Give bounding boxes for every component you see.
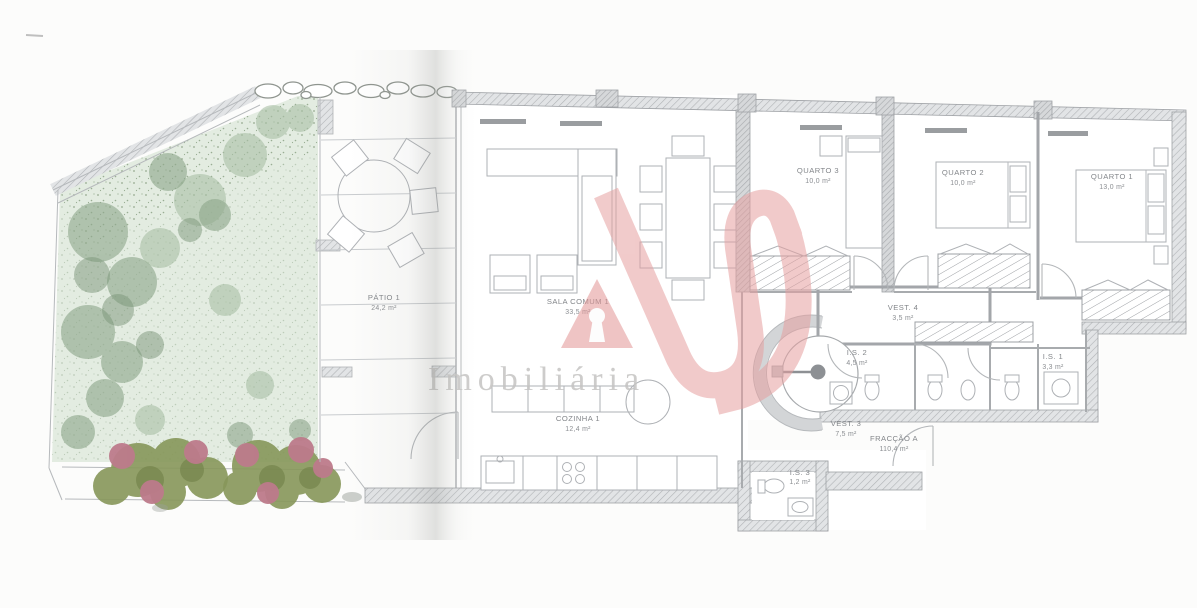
svg-text:4,5 m²: 4,5 m² (846, 360, 868, 367)
room-label-fracao-a: FRACÇÃO A (870, 434, 918, 443)
svg-text:10,0 m²: 10,0 m² (950, 180, 976, 187)
room-label-is2: I.S. 2 (847, 348, 867, 357)
room-label-cozinha: COZINHA 1 (556, 414, 600, 423)
svg-text:13,0 m²: 13,0 m² (1099, 184, 1125, 191)
svg-text:3,5 m²: 3,5 m² (892, 315, 914, 322)
room-label-vest3: VEST. 3 (831, 419, 862, 428)
room-label-vest4: VEST. 4 (888, 303, 919, 312)
svg-text:10,0 m²: 10,0 m² (805, 178, 831, 185)
svg-text:7,5 m²: 7,5 m² (835, 431, 857, 438)
floorplan-drawing: PÁTIO 1 24,2 m² SALA COMUM 1 33,5 m² COZ… (0, 0, 1197, 608)
page-corner-mark (26, 35, 43, 36)
garden-area (52, 96, 318, 462)
room-label-quarto3: QUARTO 3 (797, 166, 839, 175)
page-fold-shadow (350, 50, 480, 540)
room-label-quarto2: QUARTO 2 (942, 168, 984, 177)
svg-text:110,4 m²: 110,4 m² (879, 446, 908, 453)
room-label-is3: I.S. 3 (790, 468, 810, 477)
room-label-quarto1: QUARTO 1 (1091, 172, 1133, 181)
svg-text:3,3 m²: 3,3 m² (1042, 364, 1064, 371)
svg-text:12,4 m²: 12,4 m² (565, 426, 591, 433)
svg-text:1,2 m²: 1,2 m² (789, 479, 811, 486)
floorplan-page: PÁTIO 1 24,2 m² SALA COMUM 1 33,5 m² COZ… (0, 0, 1197, 608)
room-label-is1: I.S. 1 (1043, 352, 1063, 361)
